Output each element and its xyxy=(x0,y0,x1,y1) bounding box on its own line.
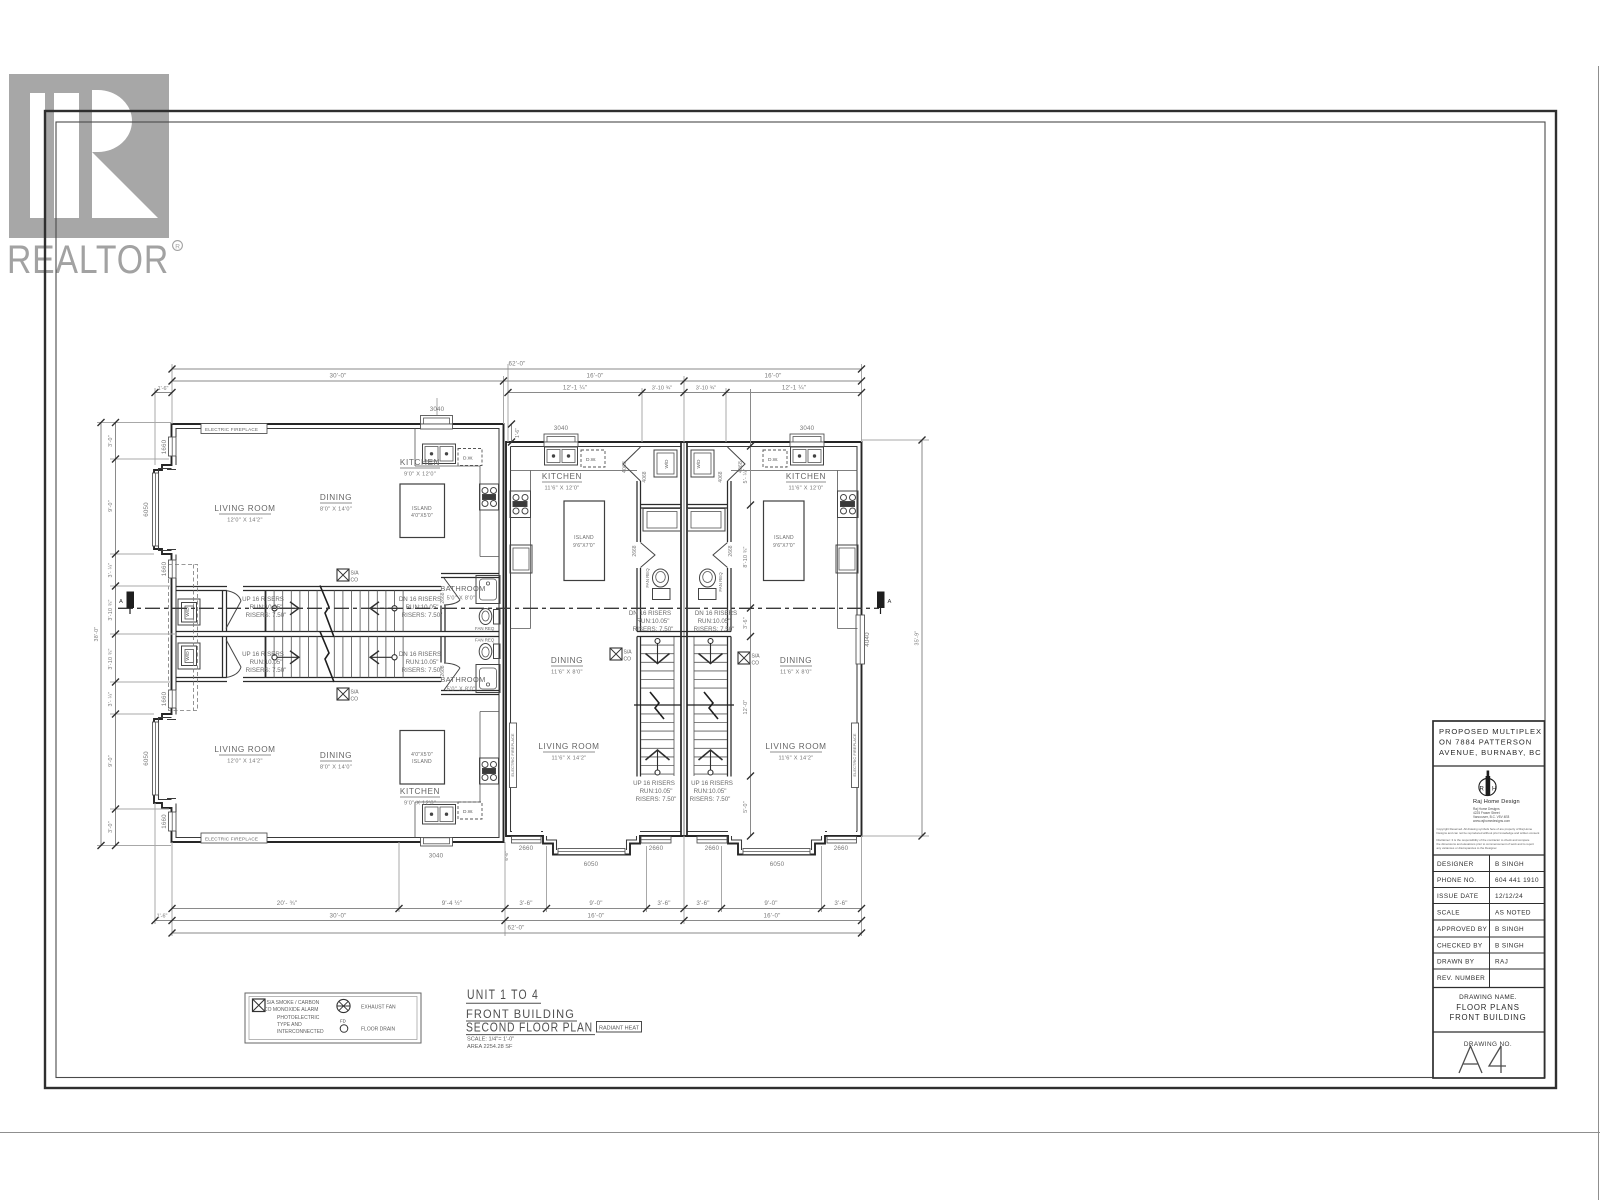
svg-text:www.rajhomedesigns.com: www.rajhomedesigns.com xyxy=(1473,819,1510,823)
svg-text:2668: 2668 xyxy=(440,665,446,676)
svg-text:S/A: S/A xyxy=(752,654,761,660)
svg-text:11'6" X 8'0": 11'6" X 8'0" xyxy=(780,670,812,676)
svg-text:ELECTRIC FIREPLACE: ELECTRIC FIREPLACE xyxy=(205,427,258,432)
svg-text:UNIT 1 TO 4: UNIT 1 TO 4 xyxy=(467,987,539,1002)
svg-text:1'-6": 1'-6" xyxy=(157,914,168,920)
svg-text:FAN REQ: FAN REQ xyxy=(475,626,495,631)
svg-text:62'-0": 62'-0" xyxy=(509,361,526,368)
svg-text:BATHROOM: BATHROOM xyxy=(440,675,485,684)
svg-text:A: A xyxy=(888,599,892,605)
svg-text:3'-0": 3'-0" xyxy=(108,821,114,833)
svg-text:12'0" X 14'2": 12'0" X 14'2" xyxy=(227,518,263,524)
svg-text:B SINGH: B SINGH xyxy=(1495,861,1524,868)
svg-text:9'-4 ½": 9'-4 ½" xyxy=(442,900,463,907)
svg-text:1660: 1660 xyxy=(161,561,168,576)
svg-text:1'-6": 1'-6" xyxy=(515,428,521,438)
svg-text:APPROVED BY: APPROVED BY xyxy=(1437,926,1488,933)
svg-text:REV. NUMBER: REV. NUMBER xyxy=(1437,975,1485,982)
svg-text:RISERS: 7.50": RISERS: 7.50" xyxy=(633,626,674,633)
svg-text:11'6" X 12'0": 11'6" X 12'0" xyxy=(544,486,579,492)
svg-text:DINING: DINING xyxy=(320,751,352,760)
svg-text:RISERS: 7.50": RISERS: 7.50" xyxy=(246,667,287,674)
svg-text:W/D: W/D xyxy=(185,651,191,661)
svg-text:11'6" X 12'0": 11'6" X 12'0" xyxy=(788,486,823,492)
svg-text:2668: 2668 xyxy=(632,545,638,556)
svg-text:1'-6": 1'-6" xyxy=(158,386,169,392)
svg-text:3'-6": 3'-6" xyxy=(657,900,670,907)
svg-text:DN 16 RISERS: DN 16 RISERS xyxy=(629,610,671,617)
svg-text:3'-6": 3'-6" xyxy=(834,900,847,907)
svg-text:30'-0": 30'-0" xyxy=(330,913,347,920)
svg-text:AVENUE, BURNABY, BC: AVENUE, BURNABY, BC xyxy=(1439,748,1541,757)
svg-text:4068: 4068 xyxy=(622,461,628,473)
svg-text:5'0" X 8'0": 5'0" X 8'0" xyxy=(447,687,476,693)
svg-text:SCALE: SCALE xyxy=(1437,910,1460,917)
svg-text:D.W.: D.W. xyxy=(463,809,473,815)
svg-text:LIVING ROOM: LIVING ROOM xyxy=(214,745,275,754)
svg-text:12'0" X 14'2": 12'0" X 14'2" xyxy=(227,759,263,765)
svg-text:5'-0": 5'-0" xyxy=(743,801,749,813)
svg-text:TYPE AND: TYPE AND xyxy=(277,1022,302,1028)
svg-text:8'-10 ¾": 8'-10 ¾" xyxy=(743,546,749,567)
svg-text:W/D: W/D xyxy=(664,459,669,469)
svg-text:1660: 1660 xyxy=(161,439,168,454)
svg-text:6'-6": 6'-6" xyxy=(504,851,509,861)
svg-text:5'0" X 8'0": 5'0" X 8'0" xyxy=(447,596,476,602)
svg-text:9'0" X 12'0": 9'0" X 12'0" xyxy=(404,472,436,478)
svg-text:REALTOR: REALTOR xyxy=(7,238,169,282)
svg-text:KITCHEN: KITCHEN xyxy=(786,472,826,481)
svg-text:12'-0": 12'-0" xyxy=(743,700,749,715)
svg-text:CO: CO xyxy=(752,661,760,667)
svg-text:FRONT BUILDING: FRONT BUILDING xyxy=(1450,1013,1527,1022)
svg-text:ISLAND: ISLAND xyxy=(574,535,594,541)
svg-text:LIVING ROOM: LIVING ROOM xyxy=(214,504,275,513)
svg-text:3'- ¼": 3'- ¼" xyxy=(108,563,114,578)
svg-text:12'-1 ¼": 12'-1 ¼" xyxy=(563,385,587,392)
svg-text:4068: 4068 xyxy=(642,471,648,482)
svg-text:9'6"X7'0": 9'6"X7'0" xyxy=(573,543,595,549)
svg-text:3'-6": 3'-6" xyxy=(696,900,709,907)
svg-text:1660: 1660 xyxy=(161,691,168,706)
svg-text:Raj Home Design: Raj Home Design xyxy=(1473,799,1520,805)
svg-text:RISERS: 7.50": RISERS: 7.50" xyxy=(690,796,731,803)
svg-text:3'-10 ¾": 3'-10 ¾" xyxy=(696,386,716,392)
svg-text:FLOOR PLANS: FLOOR PLANS xyxy=(1456,1003,1519,1012)
svg-text:PHONE NO.: PHONE NO. xyxy=(1437,877,1476,884)
svg-text:11'6" X 8'0": 11'6" X 8'0" xyxy=(551,670,583,676)
svg-text:3'- ¼": 3'- ¼" xyxy=(108,692,114,707)
svg-text:S/A SMOKE / CARBON: S/A SMOKE / CARBON xyxy=(267,1000,320,1006)
svg-text:9'-0": 9'-0" xyxy=(108,755,114,767)
svg-text:2660: 2660 xyxy=(705,845,720,852)
svg-text:D.W.: D.W. xyxy=(463,456,473,462)
svg-text:DESIGNER: DESIGNER xyxy=(1437,861,1474,868)
svg-text:CO: CO xyxy=(624,657,632,663)
svg-text:ELECTRIC FIREPLACE: ELECTRIC FIREPLACE xyxy=(205,837,258,842)
svg-text:RUN:10.05": RUN:10.05" xyxy=(640,788,673,795)
svg-text:2660: 2660 xyxy=(649,845,664,852)
svg-text:UP 16 RISERS: UP 16 RISERS xyxy=(242,596,284,603)
svg-text:S/A: S/A xyxy=(351,571,360,577)
svg-text:D.W.: D.W. xyxy=(586,457,596,463)
svg-text:FAN REQ: FAN REQ xyxy=(718,572,723,592)
svg-text:ELECTRIC FIREPLACE: ELECTRIC FIREPLACE xyxy=(510,733,515,776)
svg-text:SCALE: 1/4"= 1'-0": SCALE: 1/4"= 1'-0" xyxy=(467,1037,514,1043)
svg-text:UP 16 RISERS: UP 16 RISERS xyxy=(242,651,284,658)
svg-text:RUN:10.05": RUN:10.05" xyxy=(250,604,283,611)
svg-text:ISLAND: ISLAND xyxy=(412,759,432,765)
svg-text:16'-0": 16'-0" xyxy=(765,373,782,380)
svg-text:RISERS: 7.50": RISERS: 7.50" xyxy=(694,626,735,633)
svg-text:EXHAUST FAN: EXHAUST FAN xyxy=(361,1005,396,1011)
svg-text:BATHROOM: BATHROOM xyxy=(440,584,485,593)
svg-text:3'-6": 3'-6" xyxy=(743,617,749,629)
svg-text:KITCHEN: KITCHEN xyxy=(400,458,440,467)
svg-text:16'-0": 16'-0" xyxy=(764,913,781,920)
svg-text:INTERCONNECTED: INTERCONNECTED xyxy=(277,1029,324,1035)
svg-text:2668: 2668 xyxy=(728,545,734,556)
svg-text:RAJ: RAJ xyxy=(1495,959,1508,966)
svg-text:Designs and can not be reprodu: Designs and can not be reproduced withou… xyxy=(1437,831,1540,835)
svg-text:12/12/24: 12/12/24 xyxy=(1495,893,1523,900)
svg-text:RADIANT HEAT: RADIANT HEAT xyxy=(599,1025,639,1031)
svg-text:LIVING ROOM: LIVING ROOM xyxy=(538,742,599,751)
svg-text:30'-0": 30'-0" xyxy=(330,373,347,380)
svg-text:SECOND FLOOR PLAN: SECOND FLOOR PLAN xyxy=(466,1021,593,1035)
svg-text:4040: 4040 xyxy=(864,632,871,647)
svg-text:35'-9": 35'-9" xyxy=(915,631,921,646)
svg-text:KITCHEN: KITCHEN xyxy=(542,472,582,481)
svg-text:FAN REQ: FAN REQ xyxy=(645,568,650,588)
svg-text:PHOTOELECTRIC: PHOTOELECTRIC xyxy=(277,1015,320,1021)
svg-text:any variances or discrepancies: any variances or discrepancies to the De… xyxy=(1437,846,1498,850)
svg-text:16'-0": 16'-0" xyxy=(588,913,605,920)
svg-text:RUN:10.05": RUN:10.05" xyxy=(698,618,731,625)
svg-text:DINING: DINING xyxy=(551,656,583,665)
svg-text:RUN:10.05": RUN:10.05" xyxy=(406,659,439,666)
svg-text:3040: 3040 xyxy=(554,425,569,432)
svg-text:A: A xyxy=(119,599,123,605)
svg-text:6050: 6050 xyxy=(143,751,150,766)
svg-text:H: H xyxy=(1492,787,1496,793)
svg-text:S/A: S/A xyxy=(624,650,633,656)
svg-text:CO MONOXIDE ALARM: CO MONOXIDE ALARM xyxy=(264,1007,318,1013)
svg-text:PROPOSED MULTIPLEX: PROPOSED MULTIPLEX xyxy=(1439,727,1542,736)
svg-text:2668: 2668 xyxy=(440,592,446,603)
svg-text:D.W.: D.W. xyxy=(768,457,778,463)
svg-text:RUN:10.05": RUN:10.05" xyxy=(637,618,670,625)
svg-text:RISERS: 7.50": RISERS: 7.50" xyxy=(246,612,287,619)
svg-text:FD: FD xyxy=(340,1019,346,1024)
svg-text:4'0"X5'0": 4'0"X5'0" xyxy=(411,752,433,758)
svg-text:B SINGH: B SINGH xyxy=(1495,926,1524,933)
svg-text:DINING: DINING xyxy=(320,493,352,502)
svg-text:ISSUE DATE: ISSUE DATE xyxy=(1437,893,1479,900)
svg-text:6050: 6050 xyxy=(584,861,599,868)
svg-text:CO: CO xyxy=(351,578,359,584)
svg-text:3'-10 ¾": 3'-10 ¾" xyxy=(108,648,114,669)
svg-text:RUN:10.05": RUN:10.05" xyxy=(250,659,283,666)
svg-text:RUN:10.05": RUN:10.05" xyxy=(694,788,727,795)
svg-text:RISERS: 7.50": RISERS: 7.50" xyxy=(402,667,443,674)
svg-text:11'6" X 14'2": 11'6" X 14'2" xyxy=(778,756,813,762)
svg-text:FLOOR DRAIN: FLOOR DRAIN xyxy=(361,1027,396,1033)
svg-text:CO: CO xyxy=(351,697,359,703)
svg-text:2660: 2660 xyxy=(519,845,534,852)
svg-text:4068: 4068 xyxy=(718,471,724,482)
svg-text:9'-0": 9'-0" xyxy=(764,900,777,907)
svg-text:20'- ¾": 20'- ¾" xyxy=(277,900,298,907)
svg-text:6050: 6050 xyxy=(770,861,785,868)
svg-text:RISERS: 7.50": RISERS: 7.50" xyxy=(402,612,443,619)
svg-text:9'6"X7'0": 9'6"X7'0" xyxy=(773,543,795,549)
svg-text:3'-0": 3'-0" xyxy=(108,435,114,447)
svg-text:RUN:10.05": RUN:10.05" xyxy=(406,604,439,611)
svg-text:LIVING ROOM: LIVING ROOM xyxy=(765,742,826,751)
svg-text:ELECTRIC FIREPLACE: ELECTRIC FIREPLACE xyxy=(852,733,857,776)
svg-text:604 441 1910: 604 441 1910 xyxy=(1495,877,1539,884)
svg-text:3'-6": 3'-6" xyxy=(519,900,532,907)
svg-text:DRAWN BY: DRAWN BY xyxy=(1437,959,1475,966)
svg-text:3040: 3040 xyxy=(800,425,815,432)
svg-text:6050: 6050 xyxy=(143,502,150,517)
svg-text:9'-0": 9'-0" xyxy=(589,900,602,907)
svg-text:3'-10 ¾": 3'-10 ¾" xyxy=(108,599,114,620)
svg-text:DINING: DINING xyxy=(780,656,812,665)
svg-text:4'0"X5'0": 4'0"X5'0" xyxy=(411,513,433,519)
svg-text:9'0" X 12'0": 9'0" X 12'0" xyxy=(404,801,436,807)
svg-text:CHECKED BY: CHECKED BY xyxy=(1437,943,1483,950)
svg-text:8'0" X 14'0": 8'0" X 14'0" xyxy=(320,765,352,771)
svg-text:DRAWING NAME.: DRAWING NAME. xyxy=(1459,994,1517,1001)
svg-text:4068: 4068 xyxy=(738,461,744,473)
svg-text:16'-0": 16'-0" xyxy=(587,373,604,380)
svg-text:R: R xyxy=(175,244,180,251)
svg-text:3040: 3040 xyxy=(430,406,445,413)
svg-text:DN 16 RISERS: DN 16 RISERS xyxy=(695,610,737,617)
svg-text:2660: 2660 xyxy=(834,845,849,852)
svg-text:9'-0": 9'-0" xyxy=(108,500,114,512)
svg-text:KITCHEN: KITCHEN xyxy=(400,787,440,796)
svg-text:8'0" X 14'0": 8'0" X 14'0" xyxy=(320,507,352,513)
svg-text:38'-0": 38'-0" xyxy=(94,627,100,642)
svg-text:62'-0": 62'-0" xyxy=(508,925,525,932)
svg-text:11'6" X 14'2": 11'6" X 14'2" xyxy=(551,756,586,762)
svg-text:FRONT BUILDING: FRONT BUILDING xyxy=(466,1007,575,1021)
svg-text:W/D: W/D xyxy=(696,459,701,469)
svg-text:AREA 2254.28 SF: AREA 2254.28 SF xyxy=(467,1044,513,1050)
svg-text:ISLAND: ISLAND xyxy=(412,506,432,512)
svg-text:R: R xyxy=(1480,787,1485,793)
svg-text:UP 16 RISERS: UP 16 RISERS xyxy=(633,780,675,787)
svg-text:DN 16 RISERS: DN 16 RISERS xyxy=(399,596,441,603)
svg-text:ISLAND: ISLAND xyxy=(774,535,794,541)
svg-text:ON 7884 PATTERSON: ON 7884 PATTERSON xyxy=(1439,738,1532,747)
svg-text:12'-1 ¼": 12'-1 ¼" xyxy=(782,385,806,392)
svg-text:S/A: S/A xyxy=(351,690,360,696)
svg-text:B SINGH: B SINGH xyxy=(1495,943,1524,950)
svg-text:1660: 1660 xyxy=(161,814,168,829)
svg-text:DN 16 RISERS: DN 16 RISERS xyxy=(399,651,441,658)
svg-text:FAN REQ: FAN REQ xyxy=(475,638,495,643)
svg-text:AS NOTED: AS NOTED xyxy=(1495,910,1531,917)
svg-text:3'-10 ¾": 3'-10 ¾" xyxy=(652,386,672,392)
svg-text:3040: 3040 xyxy=(429,853,444,860)
svg-text:RISERS: 7.50": RISERS: 7.50" xyxy=(636,796,677,803)
svg-text:UP 16 RISERS: UP 16 RISERS xyxy=(691,780,733,787)
